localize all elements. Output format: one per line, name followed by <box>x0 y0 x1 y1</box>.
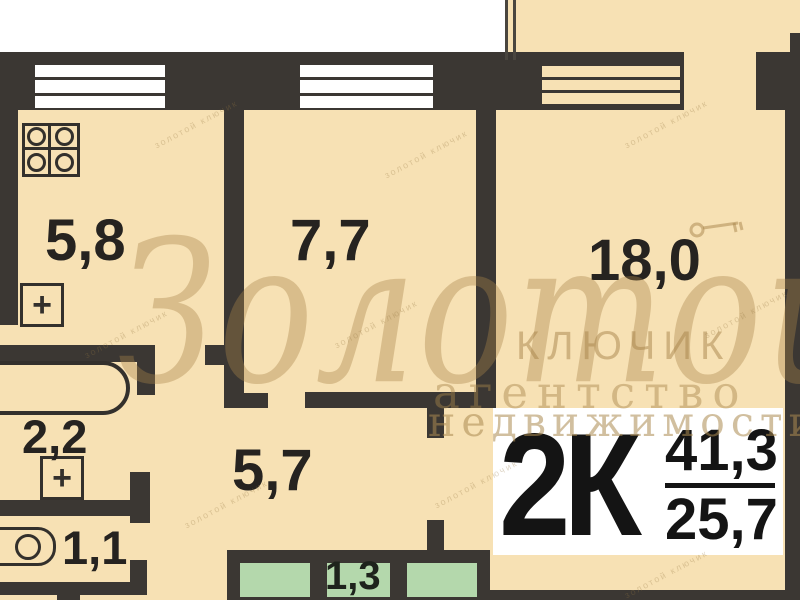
living-area: 25,7 <box>665 491 775 549</box>
wall-hall-door-stub-top <box>427 408 444 438</box>
area-fraction: 41,3 25,7 <box>665 422 775 549</box>
wall-bottom-right <box>490 590 790 600</box>
kitchen-window <box>35 65 165 108</box>
burner-icon <box>27 127 46 146</box>
wall-bath-right-mid <box>130 472 150 523</box>
window-pane <box>542 80 680 91</box>
balcony-door-opening <box>684 52 756 110</box>
wall-balcony-right <box>790 33 800 63</box>
balcony-rail <box>505 0 508 60</box>
area-badge: 2К 41,3 25,7 <box>493 408 783 555</box>
room-area-kitchen: 5,8 <box>45 212 126 270</box>
wall-kitchen-bottom <box>0 345 155 362</box>
room-area-hall: 5,7 <box>232 442 313 500</box>
rooms-count: 2К <box>499 412 635 558</box>
window-pane <box>300 96 433 108</box>
balcony-rail <box>513 0 516 60</box>
watermark-pattern: золотой ключик <box>383 129 469 181</box>
wall-right <box>785 60 800 600</box>
window-pane <box>542 93 680 104</box>
window-pane <box>35 65 165 77</box>
wall-kitchen-divider-foot <box>224 393 268 408</box>
room-area-bathroom: 2,2 <box>22 413 87 460</box>
room-area-wc: 1,1 <box>62 524 127 571</box>
window-pane <box>35 80 165 92</box>
wall-rooms-divider <box>476 110 496 408</box>
wall-bath-right-top <box>137 345 155 395</box>
watermark-pattern: золотой ключик <box>703 289 789 341</box>
bathtub-icon <box>0 361 130 415</box>
wall-kitchen-divider <box>224 110 244 393</box>
toilet-icon <box>0 527 56 566</box>
floor-plan: + + 5,8 7,7 18,0 2,2 5,7 1,1 1,3 Золотой… <box>0 0 800 600</box>
closet-left <box>240 563 310 597</box>
stove-icon <box>22 123 80 177</box>
window-pane <box>35 96 165 108</box>
wall-bath-wc-divider <box>0 500 133 516</box>
burner-icon <box>27 153 46 172</box>
vent-shaft-icon: + <box>20 283 64 327</box>
wall-hall-door-stub-bottom <box>427 520 444 553</box>
wall-entry-stub <box>57 593 80 600</box>
room-area-room2: 18,0 <box>588 232 701 290</box>
room1-window <box>300 65 433 108</box>
window-pane <box>300 80 433 92</box>
window-pane <box>300 65 433 77</box>
room-area-room1: 7,7 <box>290 212 371 270</box>
watermark-pattern: золотой ключик <box>333 299 419 351</box>
balcony-window <box>538 62 684 108</box>
burner-icon <box>55 153 74 172</box>
window-pane <box>542 66 680 77</box>
wall-kitchen-door-stub <box>205 345 224 365</box>
closet-right <box>407 563 477 597</box>
wall-left <box>0 52 18 325</box>
key-icon <box>688 210 746 244</box>
total-area: 41,3 <box>665 422 775 480</box>
toilet-bowl-icon <box>15 534 41 560</box>
room-area-closet: 1,3 <box>325 556 381 596</box>
watermark-keychik: КЛЮЧИК <box>516 326 731 366</box>
wall-room1-bottom <box>305 392 490 408</box>
exterior-area <box>0 0 505 52</box>
burner-icon <box>55 127 74 146</box>
